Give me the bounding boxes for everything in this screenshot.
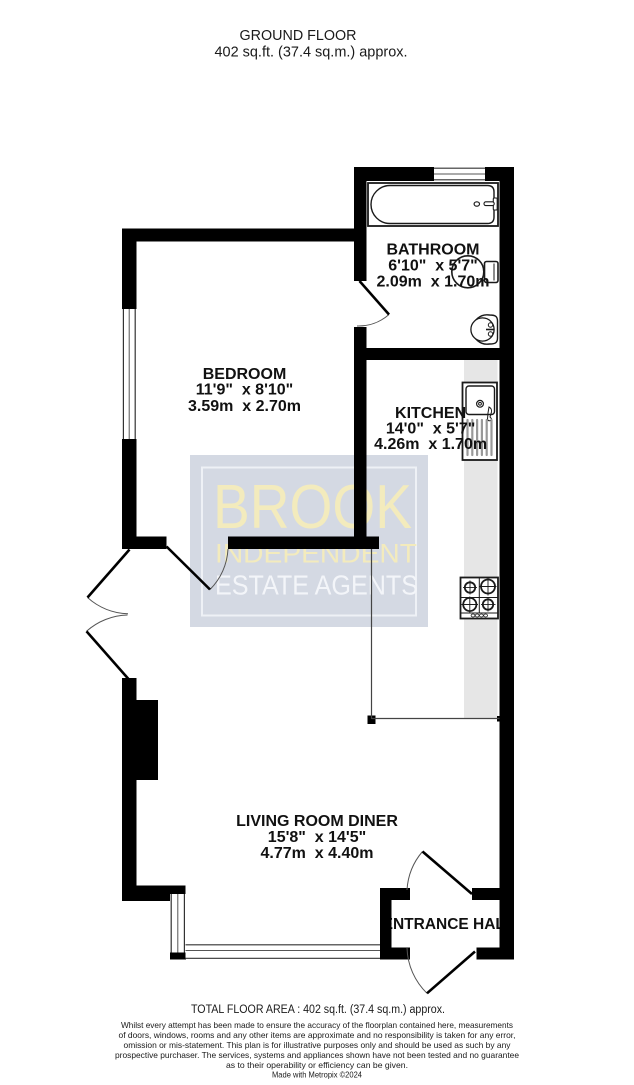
svg-text:prospective purchaser. The ser: prospective purchaser. The services, sys… xyxy=(115,1050,519,1060)
svg-text:of doors, windows, rooms and a: of doors, windows, rooms and any other i… xyxy=(119,1030,516,1040)
svg-text:3.59m x 2.70m: 3.59m x 2.70m xyxy=(188,398,301,415)
svg-text:2.09m x 1.70m: 2.09m x 1.70m xyxy=(377,273,490,290)
svg-text:as to their operability or eff: as to their operability or efficiency ca… xyxy=(226,1060,408,1070)
svg-text:BATHROOM: BATHROOM xyxy=(386,242,479,259)
svg-text:GROUND FLOOR: GROUND FLOOR xyxy=(240,27,357,44)
svg-text:15'8" x 14'5": 15'8" x 14'5" xyxy=(268,829,366,846)
svg-text:BROOK: BROOK xyxy=(213,473,412,542)
svg-text:6'10" x 5'7": 6'10" x 5'7" xyxy=(388,257,478,274)
svg-text:Whilst every attempt has been: Whilst every attempt has been made to en… xyxy=(121,1020,513,1030)
svg-text:ENTRANCE HALL: ENTRANCE HALL xyxy=(383,916,515,933)
svg-text:omission or mis-statement. Thi: omission or mis-statement. This plan is … xyxy=(124,1040,512,1050)
svg-text:4.77m x 4.40m: 4.77m x 4.40m xyxy=(261,845,374,862)
svg-text:ESTATE AGENTS: ESTATE AGENTS xyxy=(215,570,418,601)
svg-text:LIVING ROOM DINER: LIVING ROOM DINER xyxy=(236,813,398,830)
svg-text:BEDROOM: BEDROOM xyxy=(203,366,287,383)
svg-text:402 sq.ft. (37.4 sq.m.) approx: 402 sq.ft. (37.4 sq.m.) approx. xyxy=(215,44,408,61)
svg-text:14'0" x 5'7": 14'0" x 5'7" xyxy=(386,421,476,438)
svg-text:TOTAL FLOOR AREA : 402 sq.ft.: TOTAL FLOOR AREA : 402 sq.ft. (37.4 sq.m… xyxy=(191,1004,445,1016)
svg-text:11'9" x 8'10": 11'9" x 8'10" xyxy=(196,382,294,399)
svg-text:Made with Metropix ©2024: Made with Metropix ©2024 xyxy=(272,1070,362,1080)
svg-text:4.26m x 1.70m: 4.26m x 1.70m xyxy=(374,436,487,453)
